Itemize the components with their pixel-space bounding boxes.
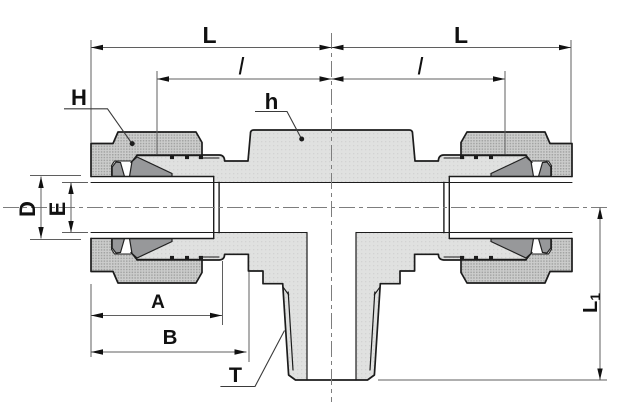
svg-text:A: A <box>151 292 165 313</box>
svg-text:L: L <box>454 22 468 48</box>
svg-text:l: l <box>238 54 244 81</box>
svg-text:D: D <box>15 201 40 217</box>
svg-text:E: E <box>45 202 70 217</box>
svg-text:L: L <box>202 22 216 48</box>
svg-text:H: H <box>71 85 87 110</box>
svg-text:T: T <box>229 363 242 387</box>
svg-text:l: l <box>417 54 423 81</box>
svg-text:h: h <box>265 89 279 114</box>
svg-text:B: B <box>163 326 178 349</box>
